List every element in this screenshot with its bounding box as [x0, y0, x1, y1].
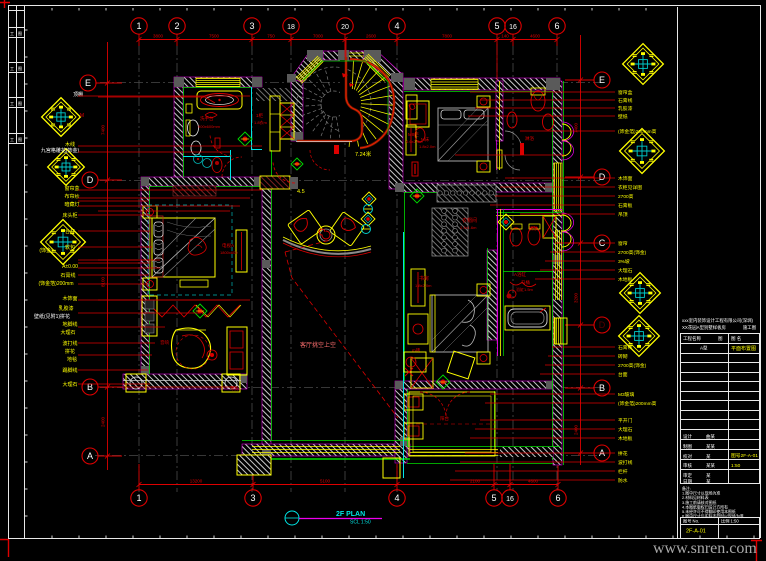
- svg-text:1: 1: [136, 493, 141, 503]
- svg-text:4.5: 4.5: [297, 189, 305, 195]
- svg-text:施工图: 施工图: [743, 324, 757, 331]
- svg-text:顶棚: 顶棚: [73, 91, 83, 98]
- svg-text:书房: 书房: [419, 275, 429, 282]
- svg-text:九宫格雕花(饰金): 九宫格雕花(饰金): [41, 147, 80, 154]
- svg-text:A浴缸: A浴缸: [514, 271, 527, 278]
- svg-text:(饰金箔)200mm高: (饰金箔)200mm高: [618, 128, 657, 135]
- svg-text:图: 图: [718, 336, 723, 342]
- svg-text:某: 某: [706, 479, 711, 485]
- svg-text:5: 5: [491, 493, 496, 503]
- svg-text:客厅挑空上空: 客厅挑空上空: [300, 341, 336, 349]
- svg-text:石膏线: 石膏线: [60, 272, 75, 279]
- svg-text:栏杆: 栏杆: [618, 468, 628, 475]
- svg-text:琴房: 琴房: [230, 385, 239, 392]
- svg-text:4600: 4600: [530, 34, 541, 39]
- svg-text:7800: 7800: [442, 34, 453, 39]
- svg-text:日期: 日期: [683, 479, 692, 485]
- svg-text:7400: 7400: [101, 124, 106, 135]
- svg-text:校对: 校对: [683, 453, 692, 460]
- svg-text:8100: 8100: [101, 276, 106, 287]
- svg-text:木地板: 木地板: [618, 276, 633, 283]
- svg-text:拼花: 拼花: [618, 450, 628, 457]
- svg-text:m砖: m砖: [412, 347, 421, 354]
- svg-text:地脚线: 地脚线: [62, 321, 77, 328]
- svg-text:电视A: 电视A: [222, 242, 234, 249]
- svg-text:2400: 2400: [574, 424, 579, 435]
- svg-text:E: E: [85, 78, 91, 88]
- svg-text:台面: 台面: [618, 371, 628, 378]
- svg-text:某某: 某某: [706, 463, 715, 469]
- svg-text:衣柜见详图: 衣柜见详图: [618, 184, 642, 191]
- svg-text:M8柜: M8柜: [408, 131, 419, 138]
- svg-text:图: 图: [18, 65, 22, 71]
- svg-text:砖砌: 砖砌: [618, 353, 628, 360]
- svg-text:比例 1:50: 比例 1:50: [721, 518, 739, 525]
- svg-text:大理石: 大理石: [62, 381, 77, 388]
- svg-text:图: 图: [18, 136, 22, 142]
- svg-text:图号2F-A-01: 图号2F-A-01: [731, 453, 758, 459]
- svg-text:大理石: 大理石: [60, 329, 75, 336]
- svg-text:平面布置图: 平面布置图: [731, 345, 756, 352]
- svg-text:壁纸(见附1)拼花: 壁纸(见附1)拼花: [34, 313, 70, 320]
- svg-text:E: E: [599, 75, 605, 85]
- svg-text:3%坡: 3%坡: [618, 258, 630, 265]
- svg-text:图 名: 图 名: [731, 335, 741, 342]
- svg-text:16: 16: [509, 24, 517, 31]
- svg-text:2.4x1.6m: 2.4x1.6m: [460, 225, 477, 230]
- svg-text:防水: 防水: [618, 477, 628, 484]
- svg-text:0.6x2.4m: 0.6x2.4m: [406, 139, 423, 144]
- svg-text:A型: A型: [700, 345, 708, 351]
- svg-text:B: B: [599, 383, 605, 393]
- svg-text:4: 4: [394, 21, 399, 31]
- svg-text:3200: 3200: [574, 292, 579, 303]
- svg-text:图号 No.: 图号 No.: [683, 519, 699, 525]
- svg-text:6: 6: [555, 493, 560, 503]
- svg-text:2600: 2600: [366, 34, 377, 39]
- svg-text:1800x600: 1800x600: [220, 250, 238, 255]
- svg-text:窗帘盒: 窗帘盒: [64, 185, 79, 192]
- svg-text:5: 5: [494, 21, 499, 31]
- svg-text:审核: 审核: [683, 462, 692, 469]
- svg-text:4600: 4600: [528, 479, 539, 484]
- svg-text:浴缸1.5m: 浴缸1.5m: [516, 286, 534, 292]
- svg-text:1.8衣m: 1.8衣m: [254, 119, 268, 125]
- svg-text:曲某: 曲某: [706, 433, 715, 440]
- svg-text:1:50: 1:50: [731, 463, 741, 469]
- svg-text:窗帘: 窗帘: [618, 240, 628, 247]
- svg-text:波打线: 波打线: [618, 459, 633, 466]
- svg-text:工: 工: [10, 66, 14, 71]
- svg-text:1: 1: [136, 21, 141, 31]
- svg-text:6: 6: [554, 21, 559, 31]
- svg-text:2F PLAN: 2F PLAN: [336, 511, 365, 518]
- svg-text:乳胶漆: 乳胶漆: [618, 105, 633, 112]
- svg-text:拼花: 拼花: [65, 348, 75, 355]
- svg-text:图: 图: [18, 30, 22, 36]
- svg-text:D: D: [599, 320, 606, 330]
- svg-text:(饰金): (饰金): [39, 247, 53, 254]
- svg-text:马桶: 马桶: [521, 279, 530, 286]
- svg-text:工程名称: 工程名称: [683, 335, 701, 342]
- svg-text:1柜: 1柜: [256, 112, 264, 119]
- svg-text:1.8x2.0m: 1.8x2.0m: [419, 144, 436, 149]
- svg-text:大理石: 大理石: [618, 426, 633, 433]
- svg-text:7400: 7400: [574, 122, 579, 133]
- svg-text:16: 16: [506, 496, 514, 503]
- svg-text:2700高: 2700高: [618, 193, 634, 200]
- svg-text:3: 3: [249, 21, 254, 31]
- svg-text:2100: 2100: [470, 479, 481, 484]
- svg-text:7.24米: 7.24米: [355, 150, 372, 158]
- svg-text:2700高(饰金): 2700高(饰金): [618, 362, 647, 369]
- svg-text:图: 图: [18, 100, 22, 106]
- svg-text:A±0.00: A±0.00: [62, 264, 78, 270]
- svg-text:大理石: 大理石: [618, 267, 633, 274]
- svg-text:xxx室内装饰设计工程有限公司(深圳): xxx室内装饰设计工程有限公司(深圳): [682, 317, 754, 324]
- svg-text:暗藏灯: 暗藏灯: [64, 201, 79, 208]
- svg-text:2700高(饰金): 2700高(饰金): [618, 249, 647, 256]
- svg-text:D: D: [87, 175, 94, 185]
- svg-text:140: 140: [501, 34, 509, 39]
- svg-text:木线: 木线: [65, 141, 75, 148]
- svg-text:梳妆: 梳妆: [529, 225, 538, 232]
- svg-text:5100: 5100: [320, 479, 331, 484]
- svg-text:3800: 3800: [153, 34, 164, 39]
- svg-text:木饰面: 木饰面: [62, 295, 77, 302]
- svg-text:踢脚线: 踢脚线: [62, 367, 77, 374]
- svg-text:(饰金箔)200mm: (饰金箔)200mm: [38, 280, 73, 287]
- svg-text:软包: 软包: [65, 244, 75, 251]
- svg-text:工: 工: [10, 31, 14, 36]
- svg-text:石膏板: 石膏板: [618, 202, 633, 209]
- svg-text:4: 4: [394, 493, 399, 503]
- svg-text:审定: 审定: [683, 472, 692, 479]
- svg-text:13200: 13200: [190, 479, 203, 484]
- svg-text:20: 20: [341, 24, 349, 31]
- svg-text:壁纸: 壁纸: [618, 113, 628, 120]
- svg-text:2F-A-01: 2F-A-01: [686, 529, 706, 535]
- svg-text:洗手台: 洗手台: [200, 115, 214, 122]
- svg-text:石膏线: 石膏线: [618, 97, 633, 104]
- svg-text:M: M: [80, 113, 84, 119]
- svg-text:淋浴: 淋浴: [525, 135, 534, 142]
- svg-text:波打线: 波打线: [62, 340, 77, 347]
- svg-text:平开门: 平开门: [618, 417, 633, 424]
- svg-text:7500: 7500: [209, 34, 220, 39]
- svg-text:乳胶漆: 乳胶漆: [58, 305, 73, 312]
- svg-text:D: D: [599, 172, 606, 182]
- svg-text:900x600mm: 900x600mm: [198, 124, 221, 129]
- svg-text:音响: 音响: [160, 339, 169, 346]
- svg-text:阳台: 阳台: [440, 415, 449, 422]
- svg-text:SCL 1:50: SCL 1:50: [350, 520, 371, 526]
- svg-text:地毯: 地毯: [67, 356, 77, 363]
- svg-text:布帘纱: 布帘纱: [64, 193, 79, 200]
- svg-text:2: 2: [174, 21, 179, 31]
- svg-text:床头柜: 床头柜: [62, 212, 77, 219]
- svg-text:7000: 7000: [313, 34, 324, 39]
- svg-text:2400: 2400: [101, 416, 106, 427]
- svg-text:工: 工: [10, 137, 14, 142]
- svg-text:工: 工: [10, 101, 14, 106]
- svg-text:石膏线: 石膏线: [618, 344, 633, 351]
- svg-text:1.8x2.0m: 1.8x2.0m: [415, 283, 432, 288]
- svg-text:窗帘盒: 窗帘盒: [618, 89, 633, 96]
- svg-text:吊顶: 吊顶: [618, 212, 628, 218]
- svg-text:木地板: 木地板: [618, 435, 633, 442]
- svg-text:3: 3: [250, 493, 255, 503]
- svg-text:750: 750: [267, 34, 275, 39]
- svg-text:M3玻璃: M3玻璃: [618, 391, 634, 398]
- svg-text:木饰面: 木饰面: [618, 175, 633, 182]
- svg-text:衣帽间: 衣帽间: [462, 217, 477, 224]
- svg-text:18: 18: [287, 24, 295, 31]
- svg-text:XX花园A型别墅样板房: XX花园A型别墅样板房: [682, 324, 727, 331]
- svg-text:(饰金箔)200mm高: (饰金箔)200mm高: [618, 400, 657, 407]
- svg-text:制图: 制图: [683, 443, 692, 450]
- svg-text:设计: 设计: [683, 433, 692, 440]
- svg-text:台灯: 台灯: [65, 228, 75, 235]
- svg-text:A: A: [87, 451, 93, 461]
